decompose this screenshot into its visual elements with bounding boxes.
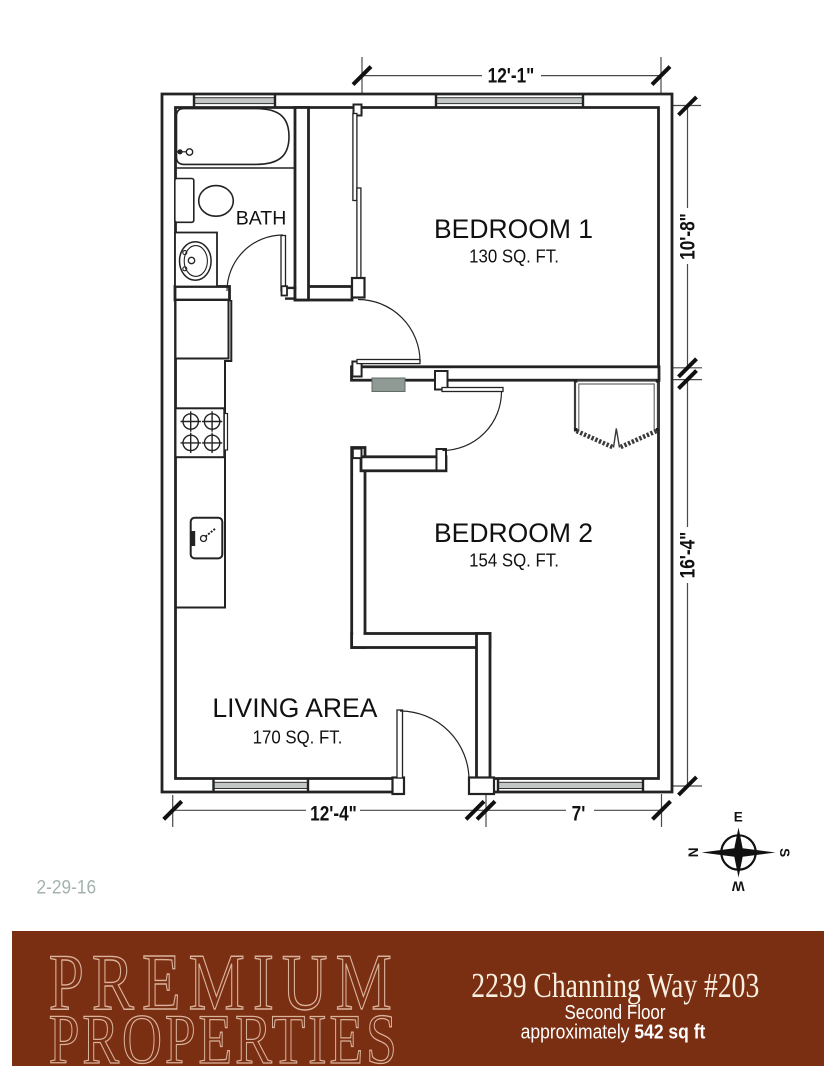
- svg-text:E: E: [734, 810, 743, 825]
- svg-text:W: W: [732, 879, 745, 894]
- svg-text:16'-4": 16'-4": [677, 532, 700, 579]
- svg-text:BATH: BATH: [236, 208, 287, 230]
- svg-text:170 SQ. FT.: 170 SQ. FT.: [253, 727, 343, 748]
- svg-text:BEDROOM 1: BEDROOM 1: [434, 214, 593, 244]
- svg-text:12'-4": 12'-4": [310, 803, 357, 826]
- svg-text:N: N: [686, 848, 701, 858]
- svg-text:12'-1": 12'-1": [488, 65, 535, 88]
- svg-text:2-29-16: 2-29-16: [37, 877, 97, 898]
- svg-text:BEDROOM 2: BEDROOM 2: [434, 518, 593, 548]
- svg-text:2239 Channing Way #203: 2239 Channing Way #203: [471, 966, 759, 1005]
- svg-text:130 SQ. FT.: 130 SQ. FT.: [469, 246, 559, 267]
- svg-text:154 SQ. FT.: 154 SQ. FT.: [469, 550, 559, 571]
- svg-text:LIVING AREA: LIVING AREA: [212, 693, 377, 723]
- svg-text:PROPERTIES: PROPERTIES: [49, 999, 400, 1078]
- svg-text:10'-8": 10'-8": [677, 213, 700, 260]
- svg-text:7': 7': [572, 803, 586, 826]
- svg-text:approximately 542 sq ft: approximately 542 sq ft: [521, 1021, 706, 1043]
- svg-text:S: S: [777, 848, 792, 857]
